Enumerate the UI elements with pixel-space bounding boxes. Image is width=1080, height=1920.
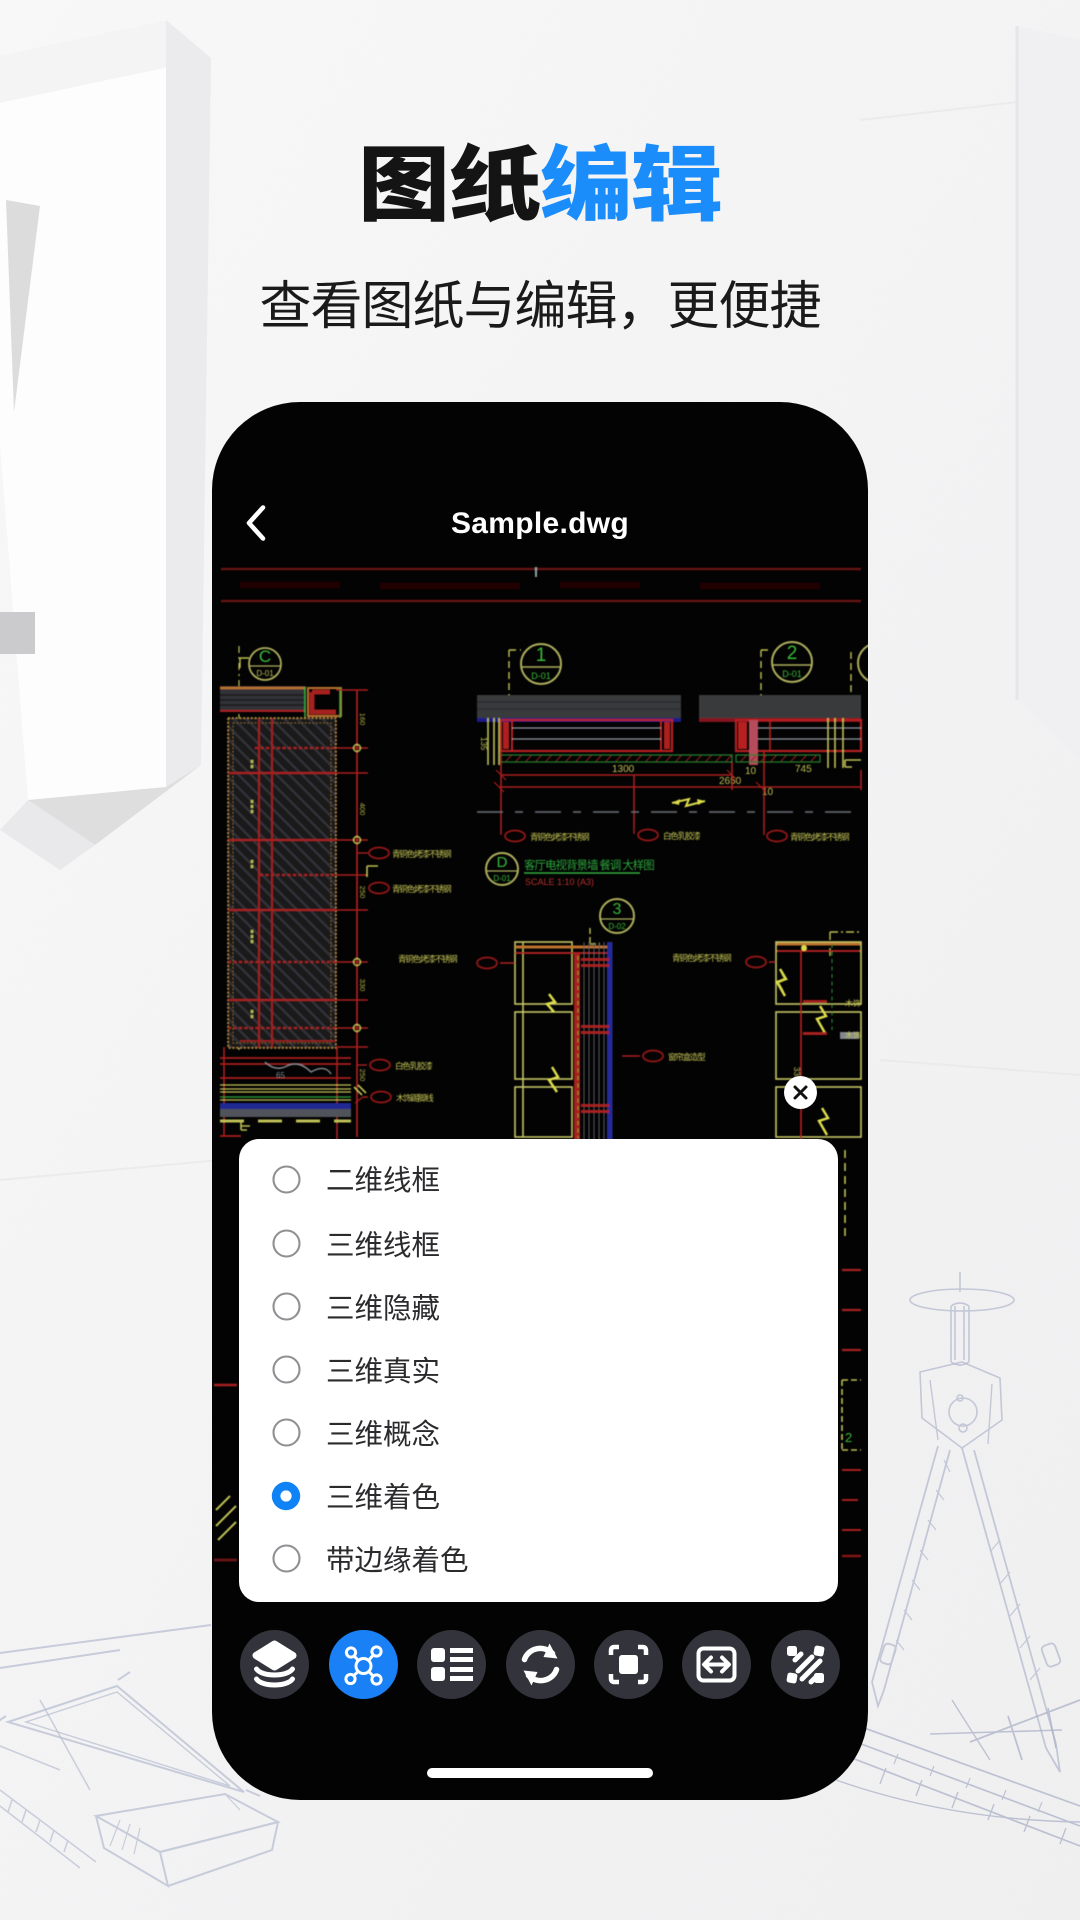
svg-text:250: 250 <box>358 1069 367 1082</box>
svg-text:SCALE 1:10 (A3): SCALE 1:10 (A3) <box>525 877 594 887</box>
svg-text:木饰踢脚线: 木饰踢脚线 <box>396 1092 434 1104</box>
svg-text:D-01: D-01 <box>493 874 511 883</box>
svg-text:160: 160 <box>358 713 367 726</box>
svg-text:135: 135 <box>479 737 488 751</box>
svg-text:D: D <box>497 854 508 871</box>
svg-text:青铜色烤漆不锈钢: 青铜色烤漆不锈钢 <box>392 883 451 895</box>
svg-text:1300: 1300 <box>612 764 635 775</box>
svg-text:400: 400 <box>358 803 367 816</box>
svg-text:白色乳胶漆: 白色乳胶漆 <box>663 830 701 842</box>
svg-text:10: 10 <box>745 766 757 777</box>
svg-text:745: 745 <box>795 764 812 775</box>
svg-text:木饰: 木饰 <box>845 998 861 1009</box>
svg-text:250: 250 <box>358 886 367 899</box>
svg-text:3: 3 <box>613 901 622 918</box>
svg-text:330: 330 <box>358 979 367 992</box>
svg-text:D-01: D-01 <box>256 669 274 678</box>
svg-text:D-02: D-02 <box>608 922 626 931</box>
svg-text:木饰: 木饰 <box>845 1030 861 1041</box>
svg-text:窗帘盒造型: 窗帘盒造型 <box>668 1051 706 1063</box>
svg-text:1: 1 <box>536 645 547 666</box>
svg-text:青铜色烤漆不锈钢: 青铜色烤漆不锈钢 <box>530 831 589 843</box>
svg-text:客厅电视背景墙 餐调 大样图: 客厅电视背景墙 餐调 大样图 <box>524 857 654 873</box>
svg-text:D-01: D-01 <box>531 671 551 681</box>
svg-text:2: 2 <box>845 1430 852 1445</box>
svg-text:白色乳胶漆: 白色乳胶漆 <box>395 1060 433 1072</box>
svg-text:青铜色烤漆不锈钢: 青铜色烤漆不锈钢 <box>790 831 849 843</box>
svg-text:青铜色烤漆不锈钢: 青铜色烤漆不锈钢 <box>398 953 457 965</box>
svg-text:青铜色烤漆不锈钢: 青铜色烤漆不锈钢 <box>672 952 731 964</box>
svg-text:2650: 2650 <box>719 776 742 787</box>
svg-text:65: 65 <box>276 1071 285 1080</box>
svg-text:青铜色烤漆不锈钢: 青铜色烤漆不锈钢 <box>392 848 451 860</box>
svg-text:C: C <box>259 647 271 666</box>
svg-text:2: 2 <box>787 643 798 664</box>
svg-text:D-01: D-01 <box>782 669 802 679</box>
